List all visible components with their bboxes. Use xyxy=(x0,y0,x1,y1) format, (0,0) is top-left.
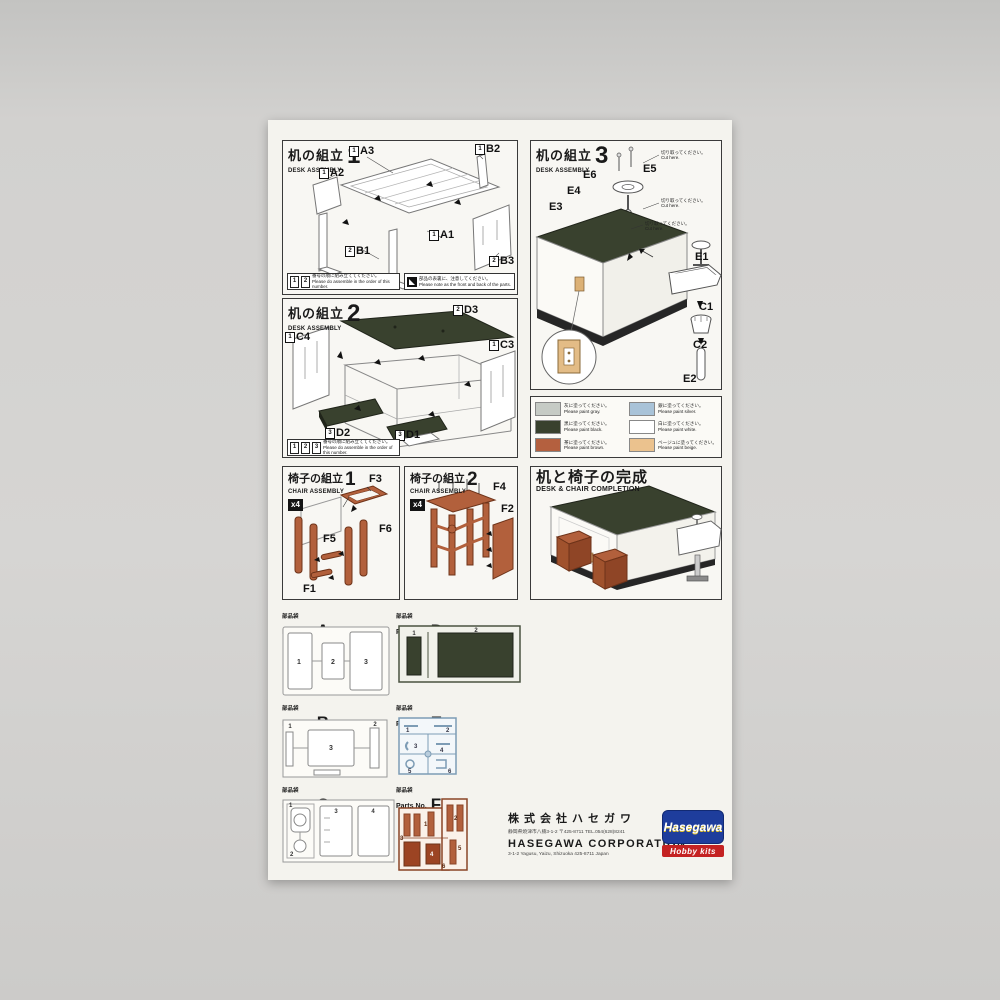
note-text: 番号の順に組み立ててください。Please do assemble in the… xyxy=(312,273,397,289)
legend-item-gray: 灰に塗ってください。Please paint gray. xyxy=(535,400,623,417)
part-label-text: E3 xyxy=(549,201,562,213)
sprue-d: 1 2 xyxy=(398,624,522,684)
desk2-step-number: 2 xyxy=(347,300,360,327)
legend-en: Please paint silver. xyxy=(658,409,696,414)
part-label-text: A1 xyxy=(440,229,454,241)
chair1-title-jp: 椅子の組立 xyxy=(288,473,343,485)
order-icon-1: 1 xyxy=(290,276,299,288)
part-label-b3: 2B3 xyxy=(489,255,514,267)
paint-color-legend: 灰に塗ってください。Please paint gray. 銀に塗ってください。P… xyxy=(530,396,722,458)
paint-swatch-white xyxy=(629,420,655,434)
part-label-a3: 1A3 xyxy=(349,145,374,157)
cut-note-en: Cut here. xyxy=(661,155,680,160)
order-box: 1 xyxy=(475,144,485,155)
order-icon-2: 2 xyxy=(301,276,310,288)
legend-text: 銀に塗ってください。Please paint silver. xyxy=(658,403,704,414)
note-assembly-order: 1 2 3 番号の順に組み立ててください。Please do assemble … xyxy=(287,439,400,456)
part-label-text: C3 xyxy=(500,339,514,351)
hobby-kits-text: Hobby kits xyxy=(670,847,716,856)
part-label-text: B2 xyxy=(486,143,500,155)
part-label-e5: E5 xyxy=(643,163,656,175)
paint-swatch-brown xyxy=(535,438,561,452)
part-label-text: E5 xyxy=(643,163,656,175)
panel-desk-assembly-1: 机の組立1 DESK ASSEMBLY 1A2 1A3 1B2 2B1 1A1 … xyxy=(282,140,518,295)
part-label-b1: 2B1 xyxy=(345,245,370,257)
completion-title-jp: 机と椅子の完成 xyxy=(536,469,648,486)
hasegawa-logo-badge: Hasegawa xyxy=(662,810,724,844)
company-address-en: 3-1-2 Yagusu, Yaizu, Shizuoka 425-8711 J… xyxy=(508,852,660,857)
part-label-e4: E4 xyxy=(567,185,580,197)
sprue-b-part-3: 3 xyxy=(329,745,333,752)
sprue-a-part-1: 1 xyxy=(297,659,301,666)
paint-swatch-beige xyxy=(629,438,655,452)
cut-here-note: 切り取ってください。Cut here. xyxy=(645,221,690,232)
legend-text: 茶に塗ってください。Please paint brown. xyxy=(564,440,610,451)
part-label-e1: E1 xyxy=(695,251,708,263)
paint-swatch-silver xyxy=(629,402,655,416)
chair2-title: 椅子の組立2 CHAIR ASSEMBLY xyxy=(410,470,478,495)
panel-desk-assembly-2: 机の組立2 DESK ASSEMBLY 1C4 2D3 1C3 3D2 3D1 … xyxy=(282,298,518,458)
cut-note-jp: 切り取ってください。 xyxy=(661,150,706,155)
part-label-c1: C1 xyxy=(699,301,713,313)
legend-text: ベージュに塗ってください。Please paint beige. xyxy=(658,440,717,451)
sprue-a-part-2: 2 xyxy=(331,659,335,666)
part-label-text: B3 xyxy=(500,255,514,267)
hasegawa-logo: Hasegawa Hobby kits xyxy=(662,810,724,857)
note-jp: 番号の順に組み立ててください。 xyxy=(323,439,390,444)
legend-jp: 銀に塗ってください。 xyxy=(658,403,704,408)
instruction-sheet: 机の組立1 DESK ASSEMBLY 1A2 1A3 1B2 2B1 1A1 … xyxy=(268,120,732,880)
part-label-text: B1 xyxy=(356,245,370,257)
sprue-f: 1 2 3 4 5 6 xyxy=(398,798,468,872)
part-label-text: D1 xyxy=(406,429,420,441)
desk3-diagram xyxy=(531,141,723,391)
part-label-text: F2 xyxy=(501,503,514,515)
bag-kanji: 部品袋 xyxy=(396,706,413,712)
paint-swatch-black xyxy=(535,420,561,434)
legend-en: Please paint white. xyxy=(658,427,697,432)
bag-kanji: 部品袋 xyxy=(282,614,299,620)
panel-desk-assembly-3: 机の組立3 DESK ASSEMBLY 切り取ってください。Cut here. … xyxy=(530,140,722,390)
legend-item-brown: 茶に塗ってください。Please paint brown. xyxy=(535,437,623,454)
order-icon-2: 2 xyxy=(301,442,310,454)
note-assembly-order: 1 2 番号の順に組み立ててください。Please do assemble in… xyxy=(287,273,400,290)
desk3-step-number: 3 xyxy=(595,142,608,169)
cut-note-jp: 切り取ってください。 xyxy=(661,198,706,203)
legend-text: 白に塗ってください。Please paint white. xyxy=(658,421,704,432)
part-label-a1: 1A1 xyxy=(429,229,454,241)
flip-icon xyxy=(407,277,417,287)
note-jp: 番号の順に組み立ててください。 xyxy=(312,273,379,278)
part-label-f1: F1 xyxy=(303,583,316,595)
part-label-text: D2 xyxy=(336,427,350,439)
completion-title-en: DESK & CHAIR COMPLETION xyxy=(536,486,648,493)
order-box: 1 xyxy=(319,168,329,179)
legend-jp: ベージュに塗ってください。 xyxy=(658,440,717,445)
legend-item-black: 黒に塗ってください。Please paint black. xyxy=(535,418,623,435)
part-label-text: E1 xyxy=(695,251,708,263)
part-label-b2: 1B2 xyxy=(475,143,500,155)
cut-note-en: Cut here. xyxy=(645,226,664,231)
order-box: 1 xyxy=(489,340,499,351)
part-label-a2: 1A2 xyxy=(319,167,344,179)
part-label-f3: F3 xyxy=(369,473,382,485)
quantity-badge: x4 xyxy=(410,499,425,511)
order-box: 1 xyxy=(349,146,359,157)
part-label-e3: E3 xyxy=(549,201,562,213)
legend-en: Please paint brown. xyxy=(564,445,604,450)
legend-item-white: 白に塗ってください。Please paint white. xyxy=(629,418,717,435)
chair2-title-jp: 椅子の組立 xyxy=(410,473,465,485)
part-label-text: E2 xyxy=(683,373,696,385)
legend-jp: 白に塗ってください。 xyxy=(658,421,704,426)
desk2-title: 机の組立2 DESK ASSEMBLY xyxy=(288,302,360,332)
note-text: 部品の表裏に、注意してください。Please note as the front… xyxy=(419,276,511,287)
order-icon-3: 3 xyxy=(312,442,321,454)
cut-here-note: 切り取ってください。Cut here. xyxy=(661,198,706,209)
desk1-title-jp: 机の組立 xyxy=(288,148,344,163)
part-label-text: E4 xyxy=(567,185,580,197)
legend-en: Please paint gray. xyxy=(564,409,600,414)
bag-kanji: 部品袋 xyxy=(282,788,299,794)
legend-item-beige: ベージュに塗ってください。Please paint beige. xyxy=(629,437,717,454)
sprue-c: 1 2 3 4 xyxy=(282,798,396,864)
panel-chair-assembly-1: 椅子の組立1 CHAIR ASSEMBLY x4 F3 F5 F6 F1 xyxy=(282,466,400,600)
order-icon-1: 1 xyxy=(290,442,299,454)
company-name-jp: 株式会社ハセガワ xyxy=(508,810,660,826)
cut-note-en: Cut here. xyxy=(661,203,680,208)
part-label-text: C2 xyxy=(693,339,707,351)
part-label-d3: 2D3 xyxy=(453,304,478,316)
order-box: 1 xyxy=(429,230,439,241)
part-label-text: D3 xyxy=(464,304,478,316)
legend-jp: 黒に塗ってください。 xyxy=(564,421,610,426)
legend-item-silver: 銀に塗ってください。Please paint silver. xyxy=(629,400,717,417)
part-label-text: C4 xyxy=(296,331,310,343)
hasegawa-logo-text: Hasegawa xyxy=(664,820,723,834)
part-label-text: F1 xyxy=(303,583,316,595)
legend-jp: 茶に塗ってください。 xyxy=(564,440,610,445)
part-label-text: F5 xyxy=(323,533,336,545)
panel-chair-assembly-2: 椅子の組立2 CHAIR ASSEMBLY x4 F4 F2 xyxy=(404,466,518,600)
legend-en: Please paint beige. xyxy=(658,445,697,450)
note-en: Please do assemble in the order of this … xyxy=(312,279,390,289)
legend-text: 灰に塗ってください。Please paint gray. xyxy=(564,403,610,414)
hobby-kits-badge: Hobby kits xyxy=(662,845,724,857)
sprue-a: 1 2 3 xyxy=(282,624,390,698)
part-label-e2: E2 xyxy=(683,373,696,385)
paint-swatch-gray xyxy=(535,402,561,416)
cut-here-note: 切り取ってください。Cut here. xyxy=(661,150,706,161)
order-box: 2 xyxy=(489,256,499,267)
part-label-f5: F5 xyxy=(323,533,336,545)
quantity-badge: x4 xyxy=(288,499,303,511)
panel-completion: 机と椅子の完成 DESK & CHAIR COMPLETION xyxy=(530,466,722,600)
chair1-title: 椅子の組立1 CHAIR ASSEMBLY xyxy=(288,470,356,495)
photo-background: 机の組立1 DESK ASSEMBLY 1A2 1A3 1B2 2B1 1A1 … xyxy=(0,0,1000,1000)
bag-kanji: 部品袋 xyxy=(396,788,413,794)
part-label-text: F4 xyxy=(493,481,506,493)
part-label-f4: F4 xyxy=(493,481,506,493)
note-en: Please note as the front and back of the… xyxy=(419,282,511,287)
part-label-f6: F6 xyxy=(379,523,392,535)
part-label-text: A2 xyxy=(330,167,344,179)
legend-jp: 灰に塗ってください。 xyxy=(564,403,610,408)
sprue-a-part-3: 3 xyxy=(364,659,368,666)
part-label-text: F6 xyxy=(379,523,392,535)
part-label-f2: F2 xyxy=(501,503,514,515)
completion-title: 机と椅子の完成 DESK & CHAIR COMPLETION xyxy=(536,470,648,493)
part-label-text: F3 xyxy=(369,473,382,485)
cut-note-jp: 切り取ってください。 xyxy=(645,221,690,226)
desk2-title-jp: 机の組立 xyxy=(288,306,344,321)
company-name-en: HASEGAWA CORPORATION xyxy=(508,838,660,850)
part-label-c4: 1C4 xyxy=(285,331,310,343)
part-label-e6: E6 xyxy=(583,169,596,181)
footer-company-block: 株式会社ハセガワ 静岡県焼津市八楠3-1-2 〒425-8711 TEL.054… xyxy=(508,810,660,857)
sprue-e: 1 2 3 4 5 6 xyxy=(398,716,458,776)
bag-kanji: 部品袋 xyxy=(282,706,299,712)
part-label-text: E6 xyxy=(583,169,596,181)
sprue-b: 1 3 2 xyxy=(282,716,388,780)
part-label-text: A3 xyxy=(360,145,374,157)
bag-kanji: 部品袋 xyxy=(396,614,413,620)
part-label-c2: C2 xyxy=(693,339,707,351)
chair2-step-number: 2 xyxy=(467,469,478,490)
company-address-jp: 静岡県焼津市八楠3-1-2 〒425-8711 TEL.054(628)8241 xyxy=(508,828,660,835)
order-box: 3 xyxy=(325,428,335,439)
note-jp: 部品の表裏に、注意してください。 xyxy=(419,276,491,281)
chair1-step-number: 1 xyxy=(345,469,356,490)
order-box: 1 xyxy=(285,332,295,343)
part-label-d2: 3D2 xyxy=(325,427,350,439)
note-en: Please do assemble in the order of this … xyxy=(323,445,393,455)
part-label-text: C1 xyxy=(699,301,713,313)
order-box: 2 xyxy=(345,246,355,257)
note-front-back: 部品の表裏に、注意してください。Please note as the front… xyxy=(404,273,515,290)
note-text: 番号の順に組み立ててください。Please do assemble in the… xyxy=(323,439,397,455)
desk3-title: 机の組立3 DESK ASSEMBLY xyxy=(536,144,608,174)
legend-text: 黒に塗ってください。Please paint black. xyxy=(564,421,610,432)
order-box: 2 xyxy=(453,305,463,316)
part-label-c3: 1C3 xyxy=(489,339,514,351)
desk3-title-jp: 机の組立 xyxy=(536,148,592,163)
legend-en: Please paint black. xyxy=(564,427,603,432)
